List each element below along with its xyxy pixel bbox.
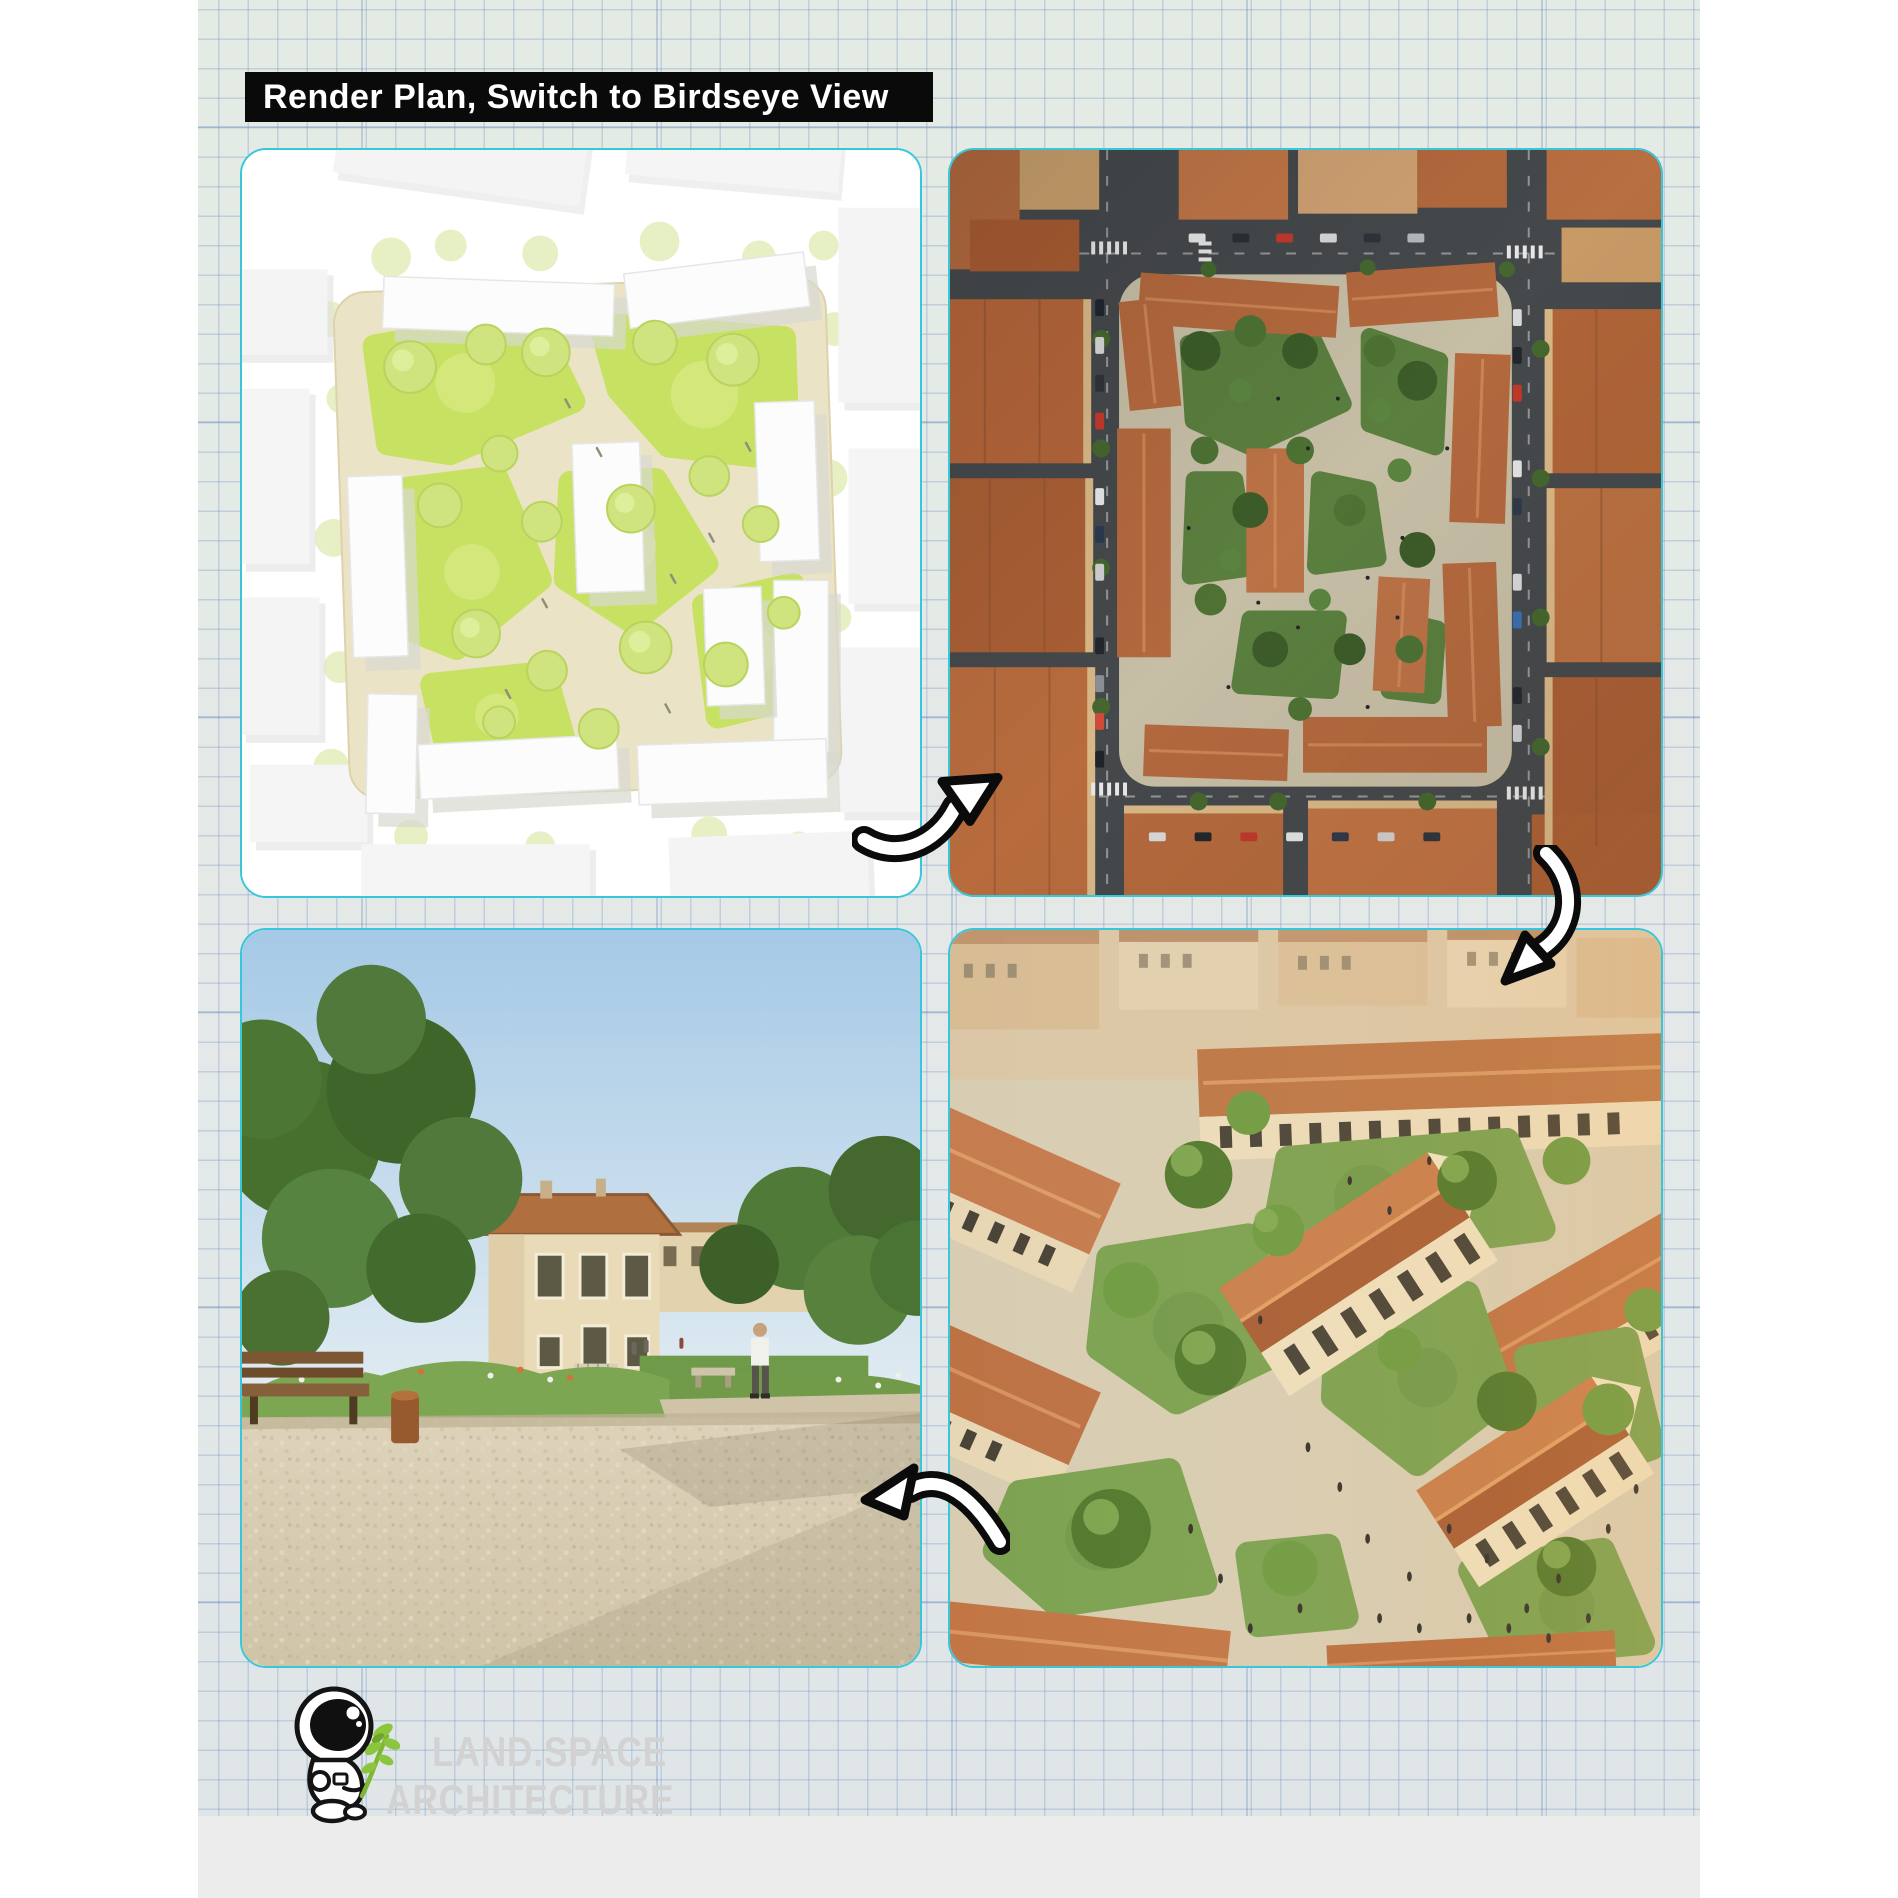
bottom-gray-strip — [198, 1816, 1700, 1898]
brand-wordmark-line1: LAND.SPACE — [432, 1728, 667, 1776]
ground-photo-card — [240, 928, 922, 1668]
render-image-card — [948, 928, 1663, 1668]
courtyard-render-illustration — [950, 930, 1661, 1666]
park-photo-illustration — [242, 930, 920, 1666]
plan-image-card — [240, 148, 922, 898]
poster-page: Render Plan, Switch to Birdseye View — [0, 0, 1898, 1898]
page-title: Render Plan, Switch to Birdseye View — [245, 72, 933, 122]
astronaut-with-leaf-icon — [282, 1684, 400, 1826]
brand-wordmark-line2: ARCHITECTURE — [386, 1776, 674, 1824]
site-plan-illustration — [242, 150, 920, 896]
aerial-view-illustration — [950, 150, 1661, 895]
aerial-image-card — [948, 148, 1663, 897]
